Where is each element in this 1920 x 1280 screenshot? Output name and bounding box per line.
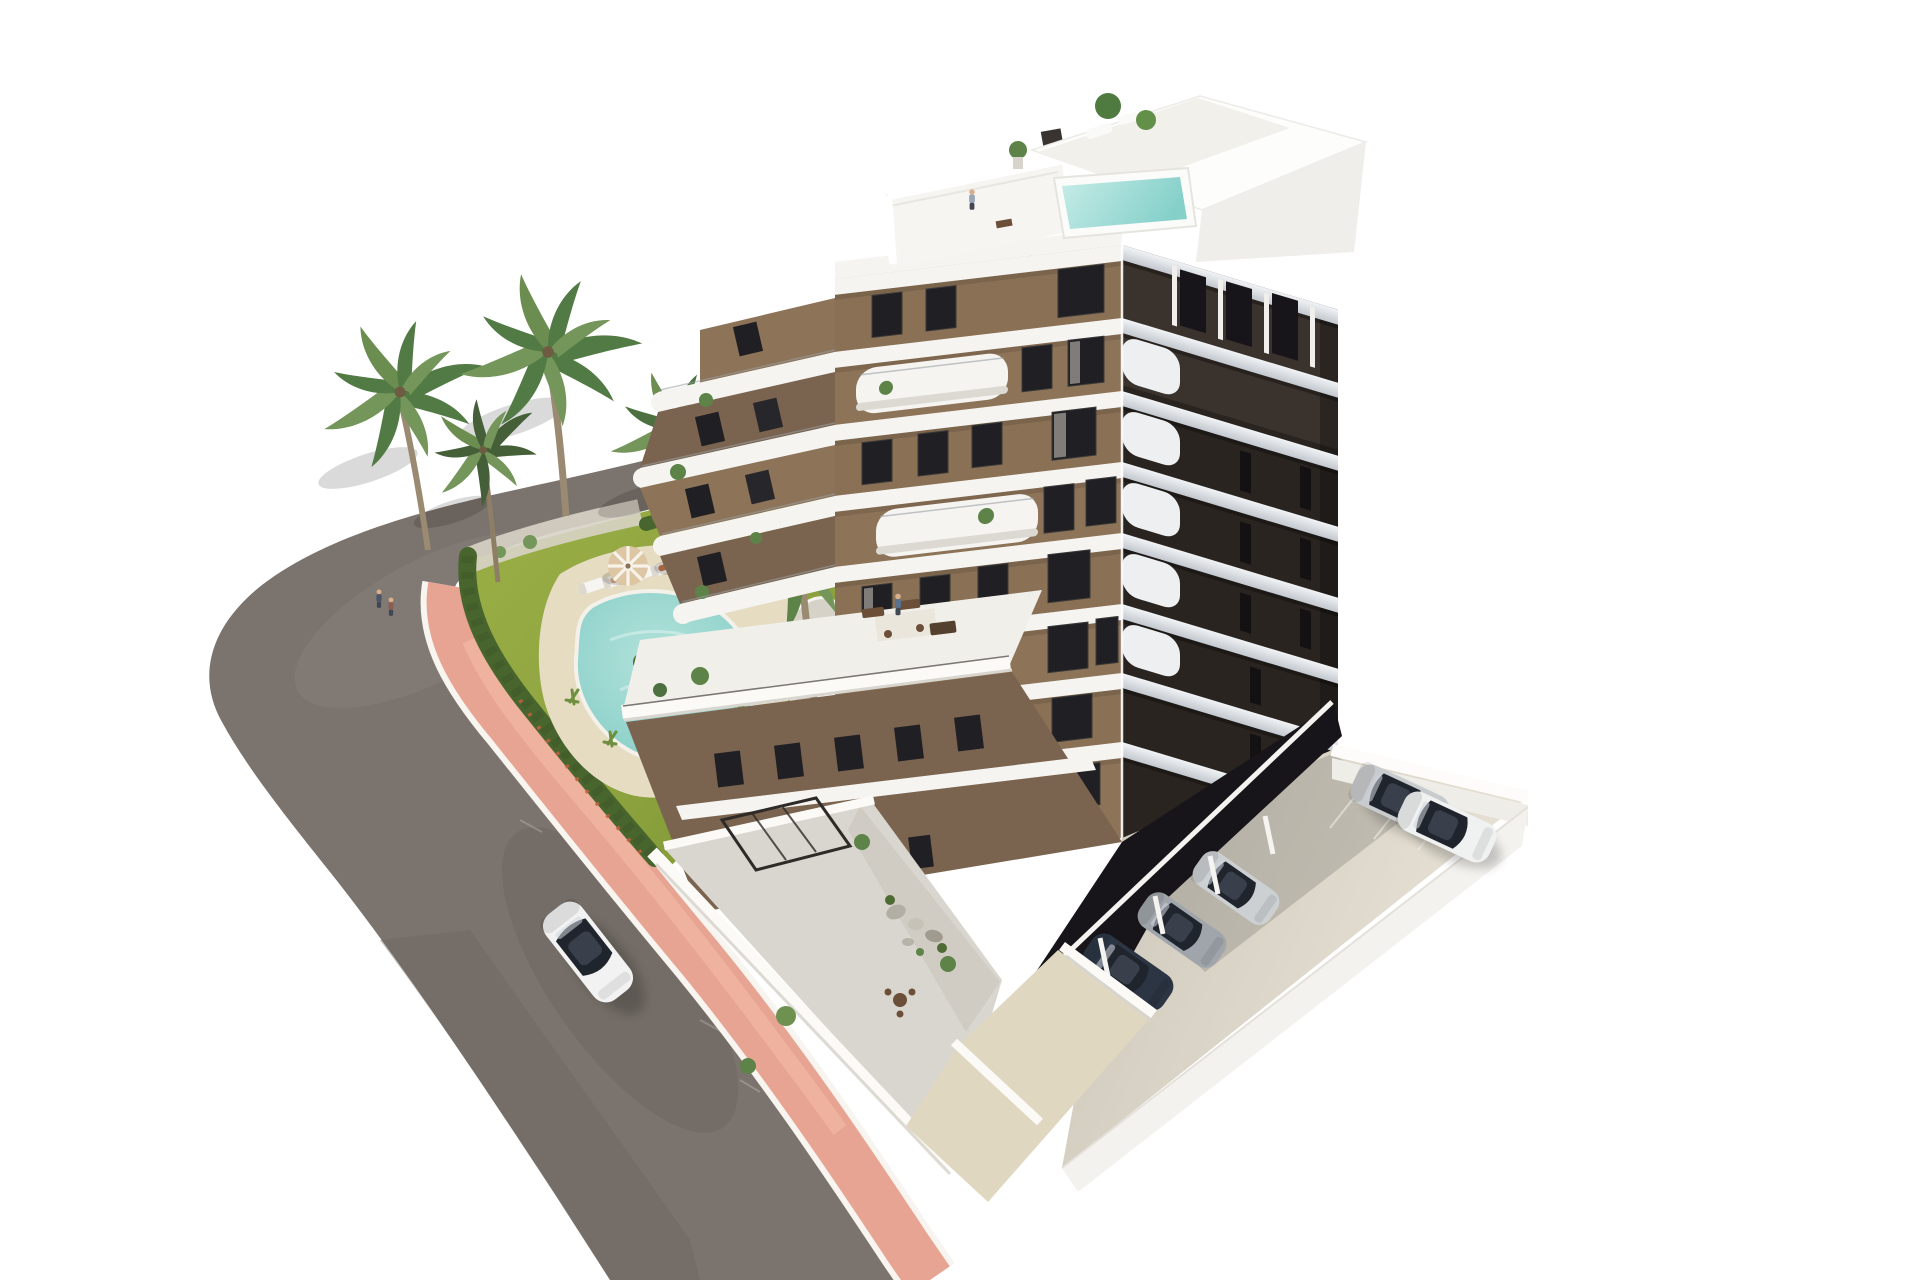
person xyxy=(895,594,901,616)
roof-tree xyxy=(1136,110,1156,130)
terrace-plant xyxy=(653,683,667,697)
potted-plant xyxy=(740,1058,756,1074)
person xyxy=(376,589,381,607)
roof-tree xyxy=(1095,93,1121,119)
render-canvas xyxy=(0,0,1920,1280)
potted-plant xyxy=(854,834,870,850)
person xyxy=(388,597,393,615)
architectural-render xyxy=(0,0,1920,1280)
roof-plant xyxy=(1009,141,1027,159)
umbrella xyxy=(608,546,648,586)
potted-plant xyxy=(776,1006,796,1026)
terrace-plant xyxy=(691,667,709,685)
person xyxy=(969,189,975,210)
